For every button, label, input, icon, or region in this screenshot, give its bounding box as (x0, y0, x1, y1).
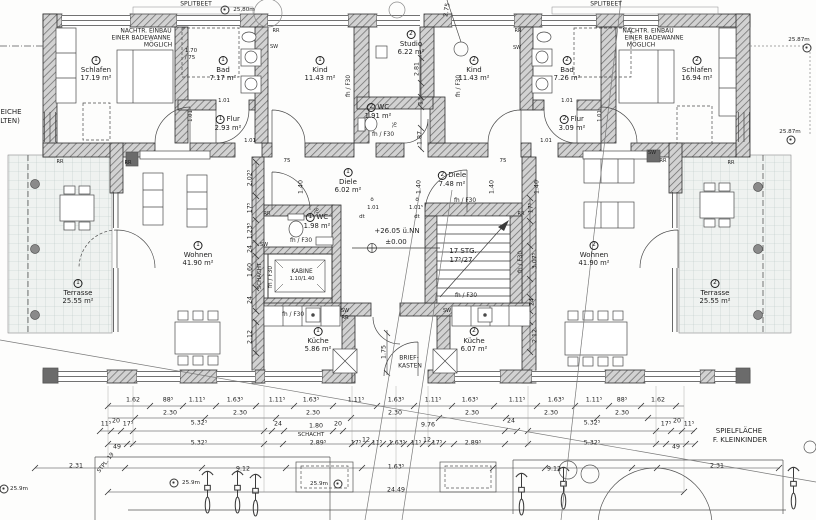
wall-segment (178, 100, 216, 110)
sofa-2a (584, 159, 634, 183)
shelter-right (440, 462, 496, 492)
wall-segment (521, 143, 531, 157)
wall-segment (522, 157, 536, 383)
corner-post (736, 368, 750, 383)
downpipe-box (126, 152, 138, 166)
shelter-left (296, 462, 353, 492)
wall-segment (700, 370, 715, 383)
bed-1 (117, 50, 173, 103)
wall-segment (252, 157, 264, 383)
splitbeet-strip-right (552, 7, 718, 14)
tree-bottom (598, 468, 712, 520)
staircase (437, 216, 510, 303)
sideboard-1 (140, 151, 210, 159)
floor-plan-page: 1Schlafen17.19 m²1Bad7.17 m²1Kind11.43 m… (0, 0, 816, 520)
bed-2 (619, 50, 674, 103)
wall-segment (264, 247, 332, 254)
terrace-left (8, 155, 112, 333)
wall-segment (110, 143, 123, 193)
wall-segment (262, 143, 272, 157)
site-marker-circle (804, 441, 816, 453)
wall-segment (601, 27, 616, 143)
sofa-1b (187, 175, 207, 227)
wall-segment (420, 27, 434, 97)
terrace-post (754, 183, 763, 192)
wall-segment (425, 203, 522, 216)
sink-bad-2 (537, 32, 551, 42)
bicycle (788, 467, 799, 509)
wall-segment (249, 100, 255, 110)
wall-segment (500, 370, 532, 383)
wall-segment (425, 216, 437, 303)
dining-table-2 (565, 322, 627, 355)
wall-segment (605, 370, 645, 383)
wall-segment (669, 143, 682, 193)
wall-segment (428, 143, 488, 157)
survey-point (454, 42, 468, 56)
wc2-toilet (358, 118, 365, 131)
wall-segment (107, 370, 137, 383)
wall-segment (130, 14, 177, 27)
wall-segment (533, 100, 544, 110)
dining-table-1 (175, 322, 220, 354)
corner-post (43, 368, 58, 383)
sofa-1a (143, 173, 163, 225)
wall-segment (596, 14, 624, 27)
splitbeet-strip-left (133, 7, 253, 14)
wc1-toilet (288, 214, 304, 220)
terrace-right (679, 155, 791, 333)
wardrobe-2 (719, 28, 736, 116)
terrace-table-2 (700, 192, 734, 218)
sideboard-2 (583, 151, 653, 159)
wardrobe-1 (56, 28, 76, 103)
wall-segment (424, 14, 452, 27)
sink-bad-1 (242, 32, 256, 42)
terrace-table-1 (60, 195, 94, 221)
wall-segment (348, 14, 377, 27)
wall-segment (332, 205, 341, 305)
bicycle (516, 473, 527, 515)
wall-segment (305, 143, 354, 157)
furniture-layer (56, 28, 736, 373)
wall-segment (577, 100, 601, 110)
wall-segment (520, 27, 533, 110)
sofa-2b (584, 202, 634, 228)
terrace-post (31, 311, 40, 320)
wall-segment (736, 14, 750, 157)
floor-plan-drawing (0, 0, 816, 520)
terrace-post (754, 311, 763, 320)
wall-segment (376, 143, 404, 157)
bathtub-zone-1 (182, 28, 239, 77)
wall-segment (510, 216, 522, 303)
bike-area-left (95, 457, 330, 520)
terrace-post (754, 245, 763, 254)
elevator-kabine (268, 254, 332, 298)
wall-segment (175, 27, 188, 143)
terrace-post (31, 180, 40, 189)
wall-segment (514, 14, 542, 27)
studio-fixture (376, 46, 387, 58)
wall-segment (255, 370, 265, 383)
terrace-post (31, 245, 40, 254)
glass-front-right (673, 192, 678, 332)
wall-segment (341, 303, 371, 316)
downpipe-box (647, 150, 660, 162)
